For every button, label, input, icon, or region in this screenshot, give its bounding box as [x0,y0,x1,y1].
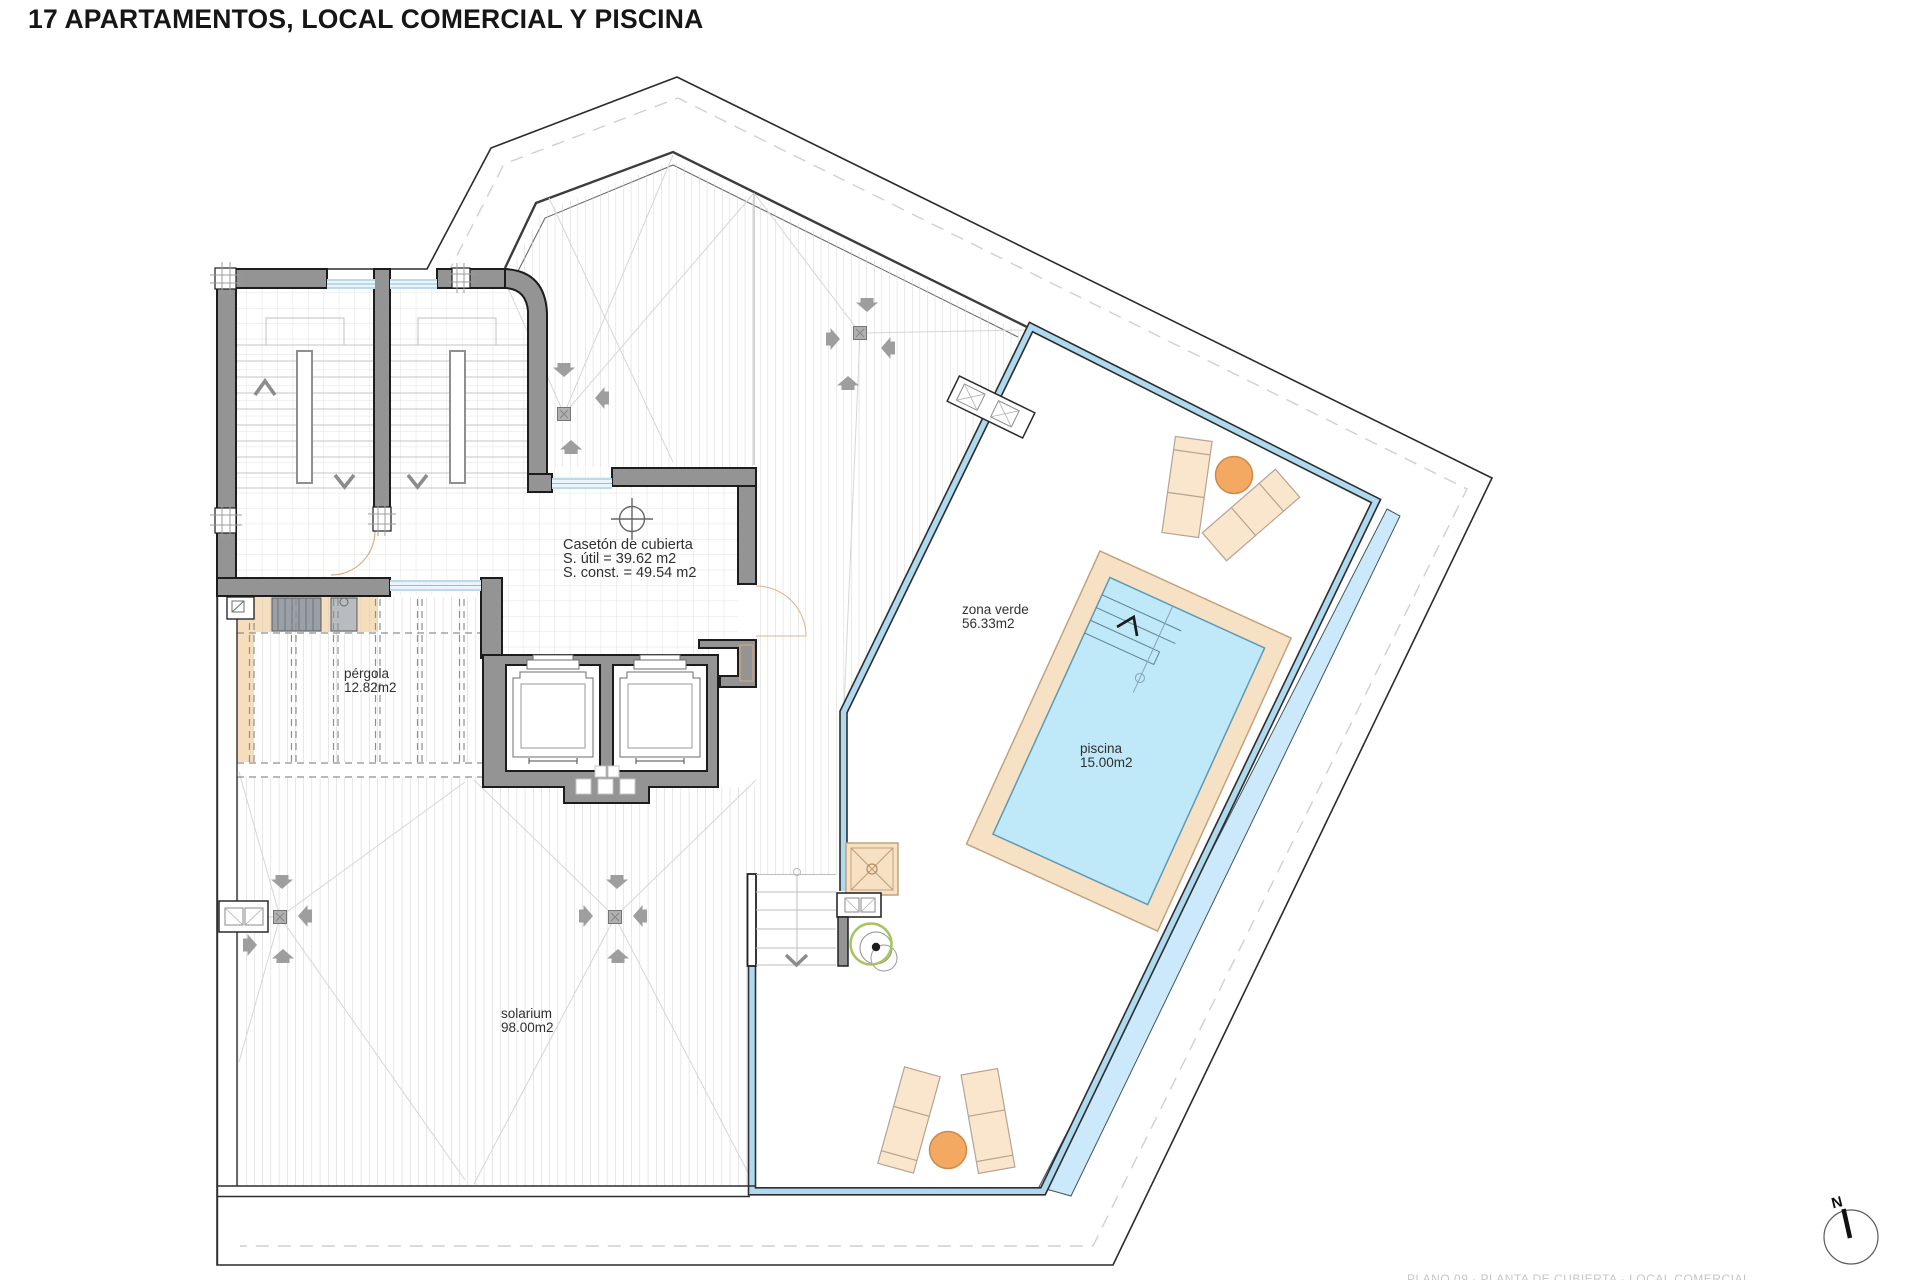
svg-text:solarium: solarium [501,1006,552,1021]
svg-text:PLANO 09 · PLANTA DE CUBIERTA: PLANO 09 · PLANTA DE CUBIERTA · LOCAL CO… [1407,1272,1750,1280]
svg-text:pérgola: pérgola [344,666,390,681]
svg-text:zona verde: zona verde [962,602,1029,617]
svg-text:17 APARTAMENTOS, LOCAL COMERCI: 17 APARTAMENTOS, LOCAL COMERCIAL Y PISCI… [28,4,703,34]
svg-text:12.82m2: 12.82m2 [344,680,397,695]
svg-text:piscina: piscina [1080,741,1123,756]
svg-text:15.00m2: 15.00m2 [1080,755,1133,770]
svg-text:98.00m2: 98.00m2 [501,1020,554,1035]
svg-text:56.33m2: 56.33m2 [962,616,1015,631]
svg-text:S. const. = 49.54 m2: S. const. = 49.54 m2 [563,565,696,581]
